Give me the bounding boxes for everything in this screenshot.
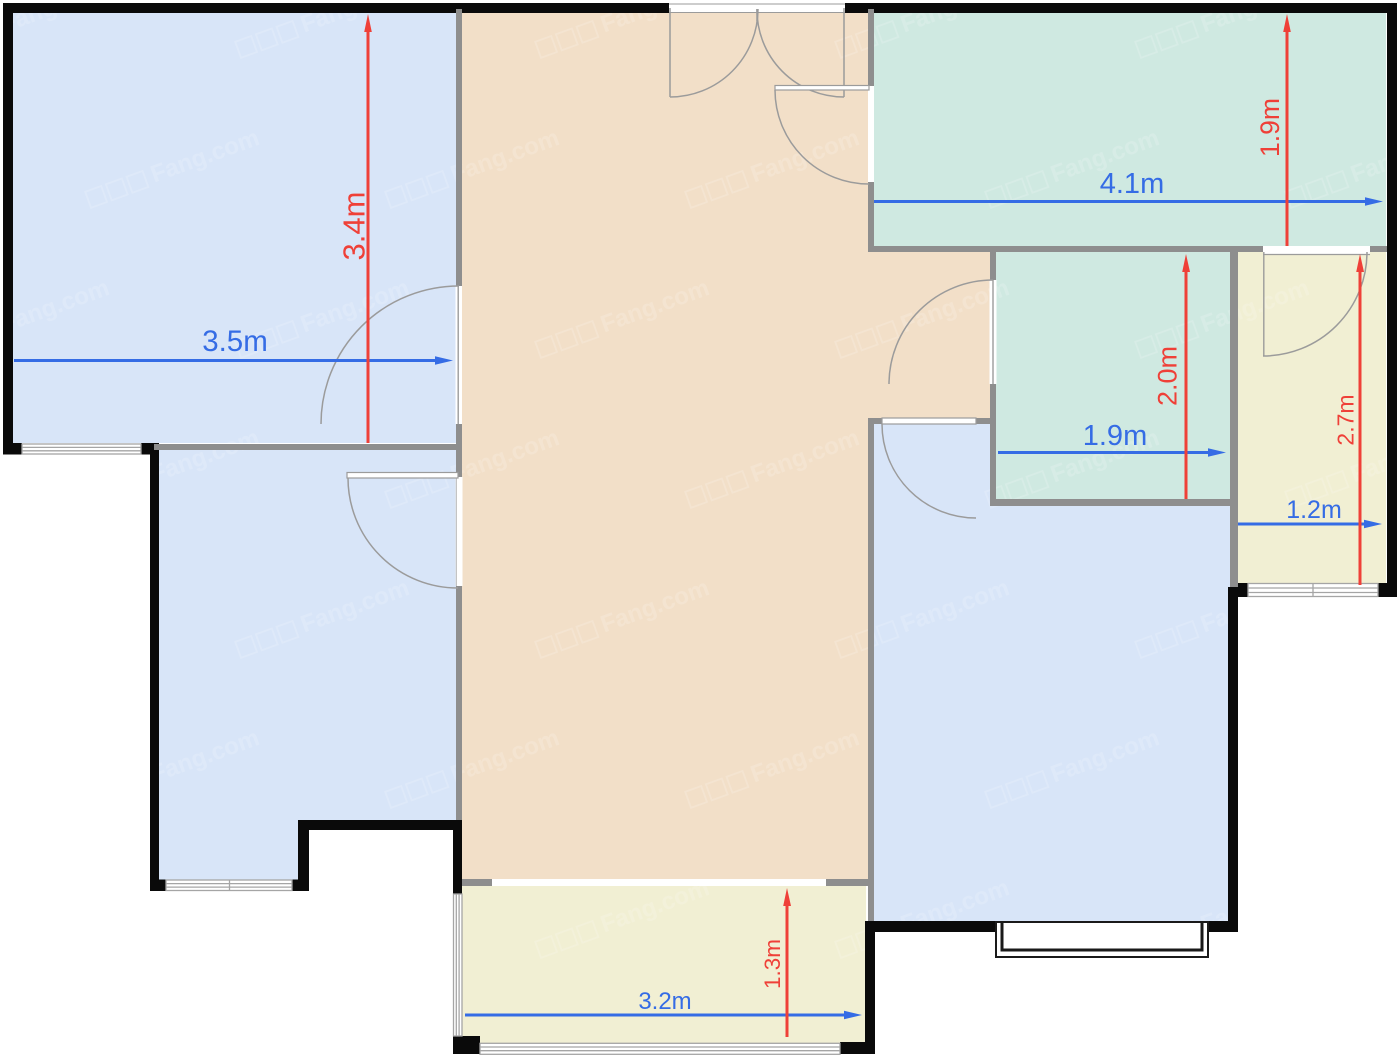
svg-text:1.9m: 1.9m — [1083, 420, 1147, 452]
svg-text:1.2m: 1.2m — [1286, 496, 1342, 524]
svg-text:2.0m: 2.0m — [1153, 346, 1183, 406]
svg-text:3.4m: 3.4m — [337, 192, 372, 261]
svg-text:3.5m: 3.5m — [202, 325, 268, 358]
svg-text:1.9m: 1.9m — [1255, 98, 1285, 157]
svg-text:1.3m: 1.3m — [760, 939, 785, 989]
svg-text:2.7m: 2.7m — [1333, 394, 1359, 445]
svg-text:3.2m: 3.2m — [638, 988, 691, 1015]
svg-text:4.1m: 4.1m — [1100, 168, 1164, 200]
